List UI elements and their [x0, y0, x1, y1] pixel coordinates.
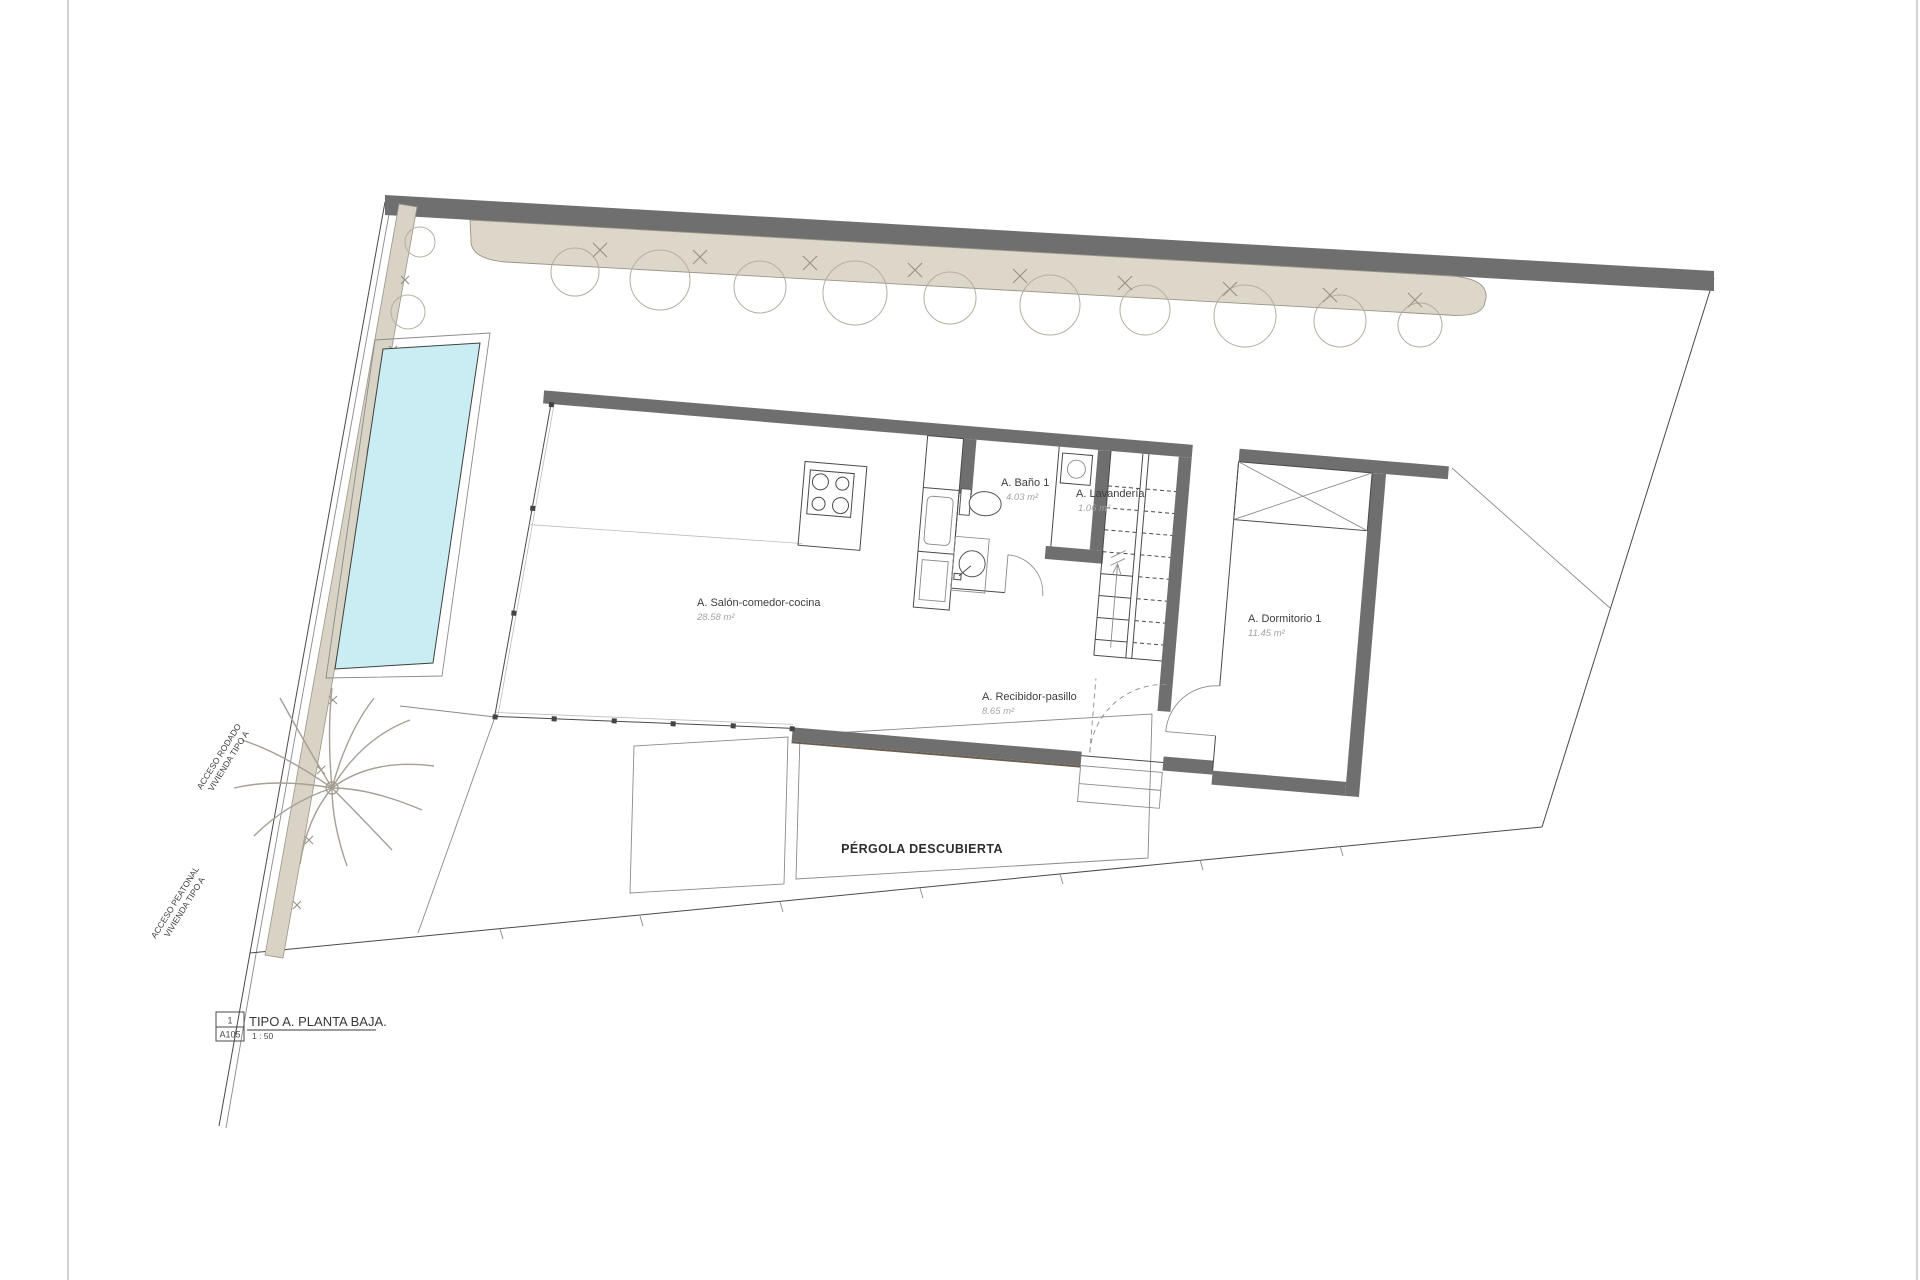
label-bedroom: A. Dormitorio 1 [1248, 613, 1321, 625]
boundary-fence [1452, 468, 1610, 608]
label-access-peatonal: ACCESO PEATONAL VIVIENDA TIPO A [149, 863, 211, 946]
wall-laundry-right [1090, 450, 1111, 551]
wardrobe [1234, 462, 1372, 531]
label-hall: A. Recibidor-pasillo [982, 691, 1077, 703]
washer-icon [1060, 453, 1092, 485]
pool [326, 333, 490, 678]
house-walls [516, 390, 1449, 802]
entry [1078, 678, 1170, 808]
detail-number: 1 [227, 1016, 232, 1026]
floor-plan-svg: A. Salón-comedor-cocina 28.58 m² A. Baño… [0, 0, 1920, 1280]
drawing-scale: 1 : 50 [252, 1031, 274, 1041]
boundary-right [1542, 278, 1714, 827]
drawing-title: TIPO A. PLANTA BAJA. [249, 1014, 387, 1029]
boundary-ticks [500, 846, 1343, 939]
toilet-icon [959, 489, 1002, 518]
stove-icon [807, 470, 855, 518]
living-room-glass-wall [492, 399, 820, 744]
laundry [1060, 453, 1092, 485]
wall-bedroom-right [1345, 473, 1386, 797]
entry-door-swing [1090, 679, 1170, 759]
label-access-rodado: ACCESO RODADO VIVIENDA TIPO A [195, 720, 254, 797]
palm-tree-icon [234, 688, 434, 866]
kitchen-island [798, 461, 867, 550]
label-bathroom: A. Baño 1 [1001, 477, 1049, 489]
pergola-bay-left [630, 737, 788, 893]
access-labels: ACCESO RODADO VIVIENDA TIPO A ACCESO PEA… [149, 720, 254, 946]
kitchen-zone-line [529, 521, 802, 548]
road-edge-1 [219, 953, 250, 1126]
wall-entry-stub [1162, 757, 1213, 775]
label-laundry-area: 1.06 m² [1078, 503, 1111, 514]
room-labels: A. Salón-comedor-cocina 28.58 m² A. Baño… [696, 477, 1321, 856]
stair-direction-arrow [1104, 549, 1126, 648]
label-bedroom-area: 11.45 m² [1248, 628, 1286, 639]
label-laundry: A. Lavandería [1076, 488, 1145, 500]
bathroom-door [1005, 555, 1046, 596]
drawing-sheet: A. Salón-comedor-cocina 28.58 m² A. Baño… [0, 0, 1920, 1280]
wall-bedroom-bottom [1211, 771, 1346, 796]
sheet-number: A105 [219, 1030, 240, 1040]
site-plan [219, 195, 1714, 1128]
glass-mullions [492, 399, 820, 744]
bedroom-door [1166, 682, 1220, 736]
label-living-room-area: 28.58 m² [696, 612, 735, 623]
label-living-room: A. Salón-comedor-cocina [697, 597, 821, 609]
wall-stair-right [1157, 457, 1191, 712]
label-pergola: PÉRGOLA DESCUBIERTA [841, 841, 1003, 856]
terrace-lines [400, 706, 495, 933]
label-bathroom-area: 4.03 m² [1006, 492, 1039, 503]
sink-icon [954, 549, 986, 581]
label-hall-area: 8.65 m² [982, 706, 1015, 717]
wall-top-main [543, 390, 1193, 457]
